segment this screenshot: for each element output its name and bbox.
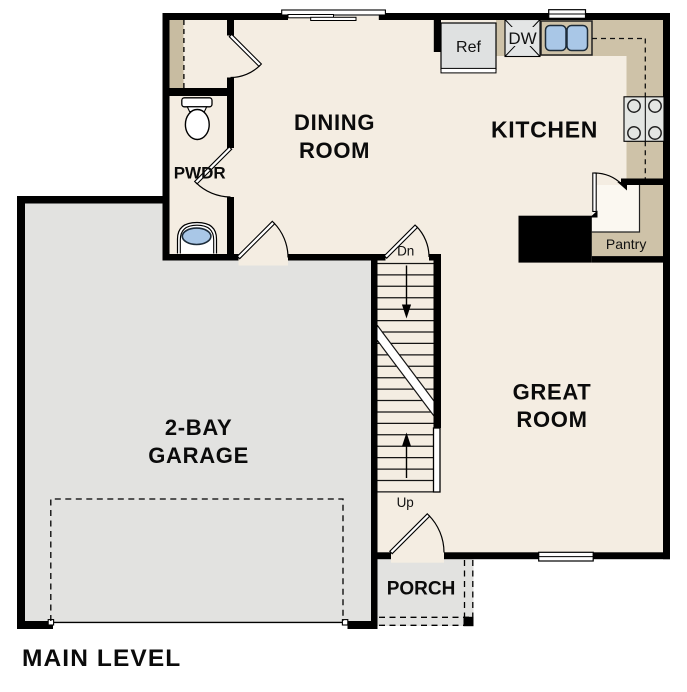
svg-text:Pantry: Pantry xyxy=(606,236,646,252)
svg-text:ROOM: ROOM xyxy=(516,407,587,432)
svg-text:DINING: DINING xyxy=(294,110,375,135)
svg-text:Ref: Ref xyxy=(456,39,481,56)
svg-text:ROOM: ROOM xyxy=(299,138,370,163)
svg-text:KITCHEN: KITCHEN xyxy=(491,117,598,143)
svg-text:PORCH: PORCH xyxy=(387,578,456,599)
svg-text:MAIN LEVEL: MAIN LEVEL xyxy=(22,645,181,672)
svg-text:DW: DW xyxy=(508,29,536,48)
svg-text:GREAT: GREAT xyxy=(513,379,592,404)
svg-text:GARAGE: GARAGE xyxy=(148,443,249,468)
svg-text:PWDR: PWDR xyxy=(174,163,226,182)
svg-text:2-BAY: 2-BAY xyxy=(165,415,233,440)
svg-text:Up: Up xyxy=(397,495,414,510)
svg-text:Dn: Dn xyxy=(397,244,414,259)
